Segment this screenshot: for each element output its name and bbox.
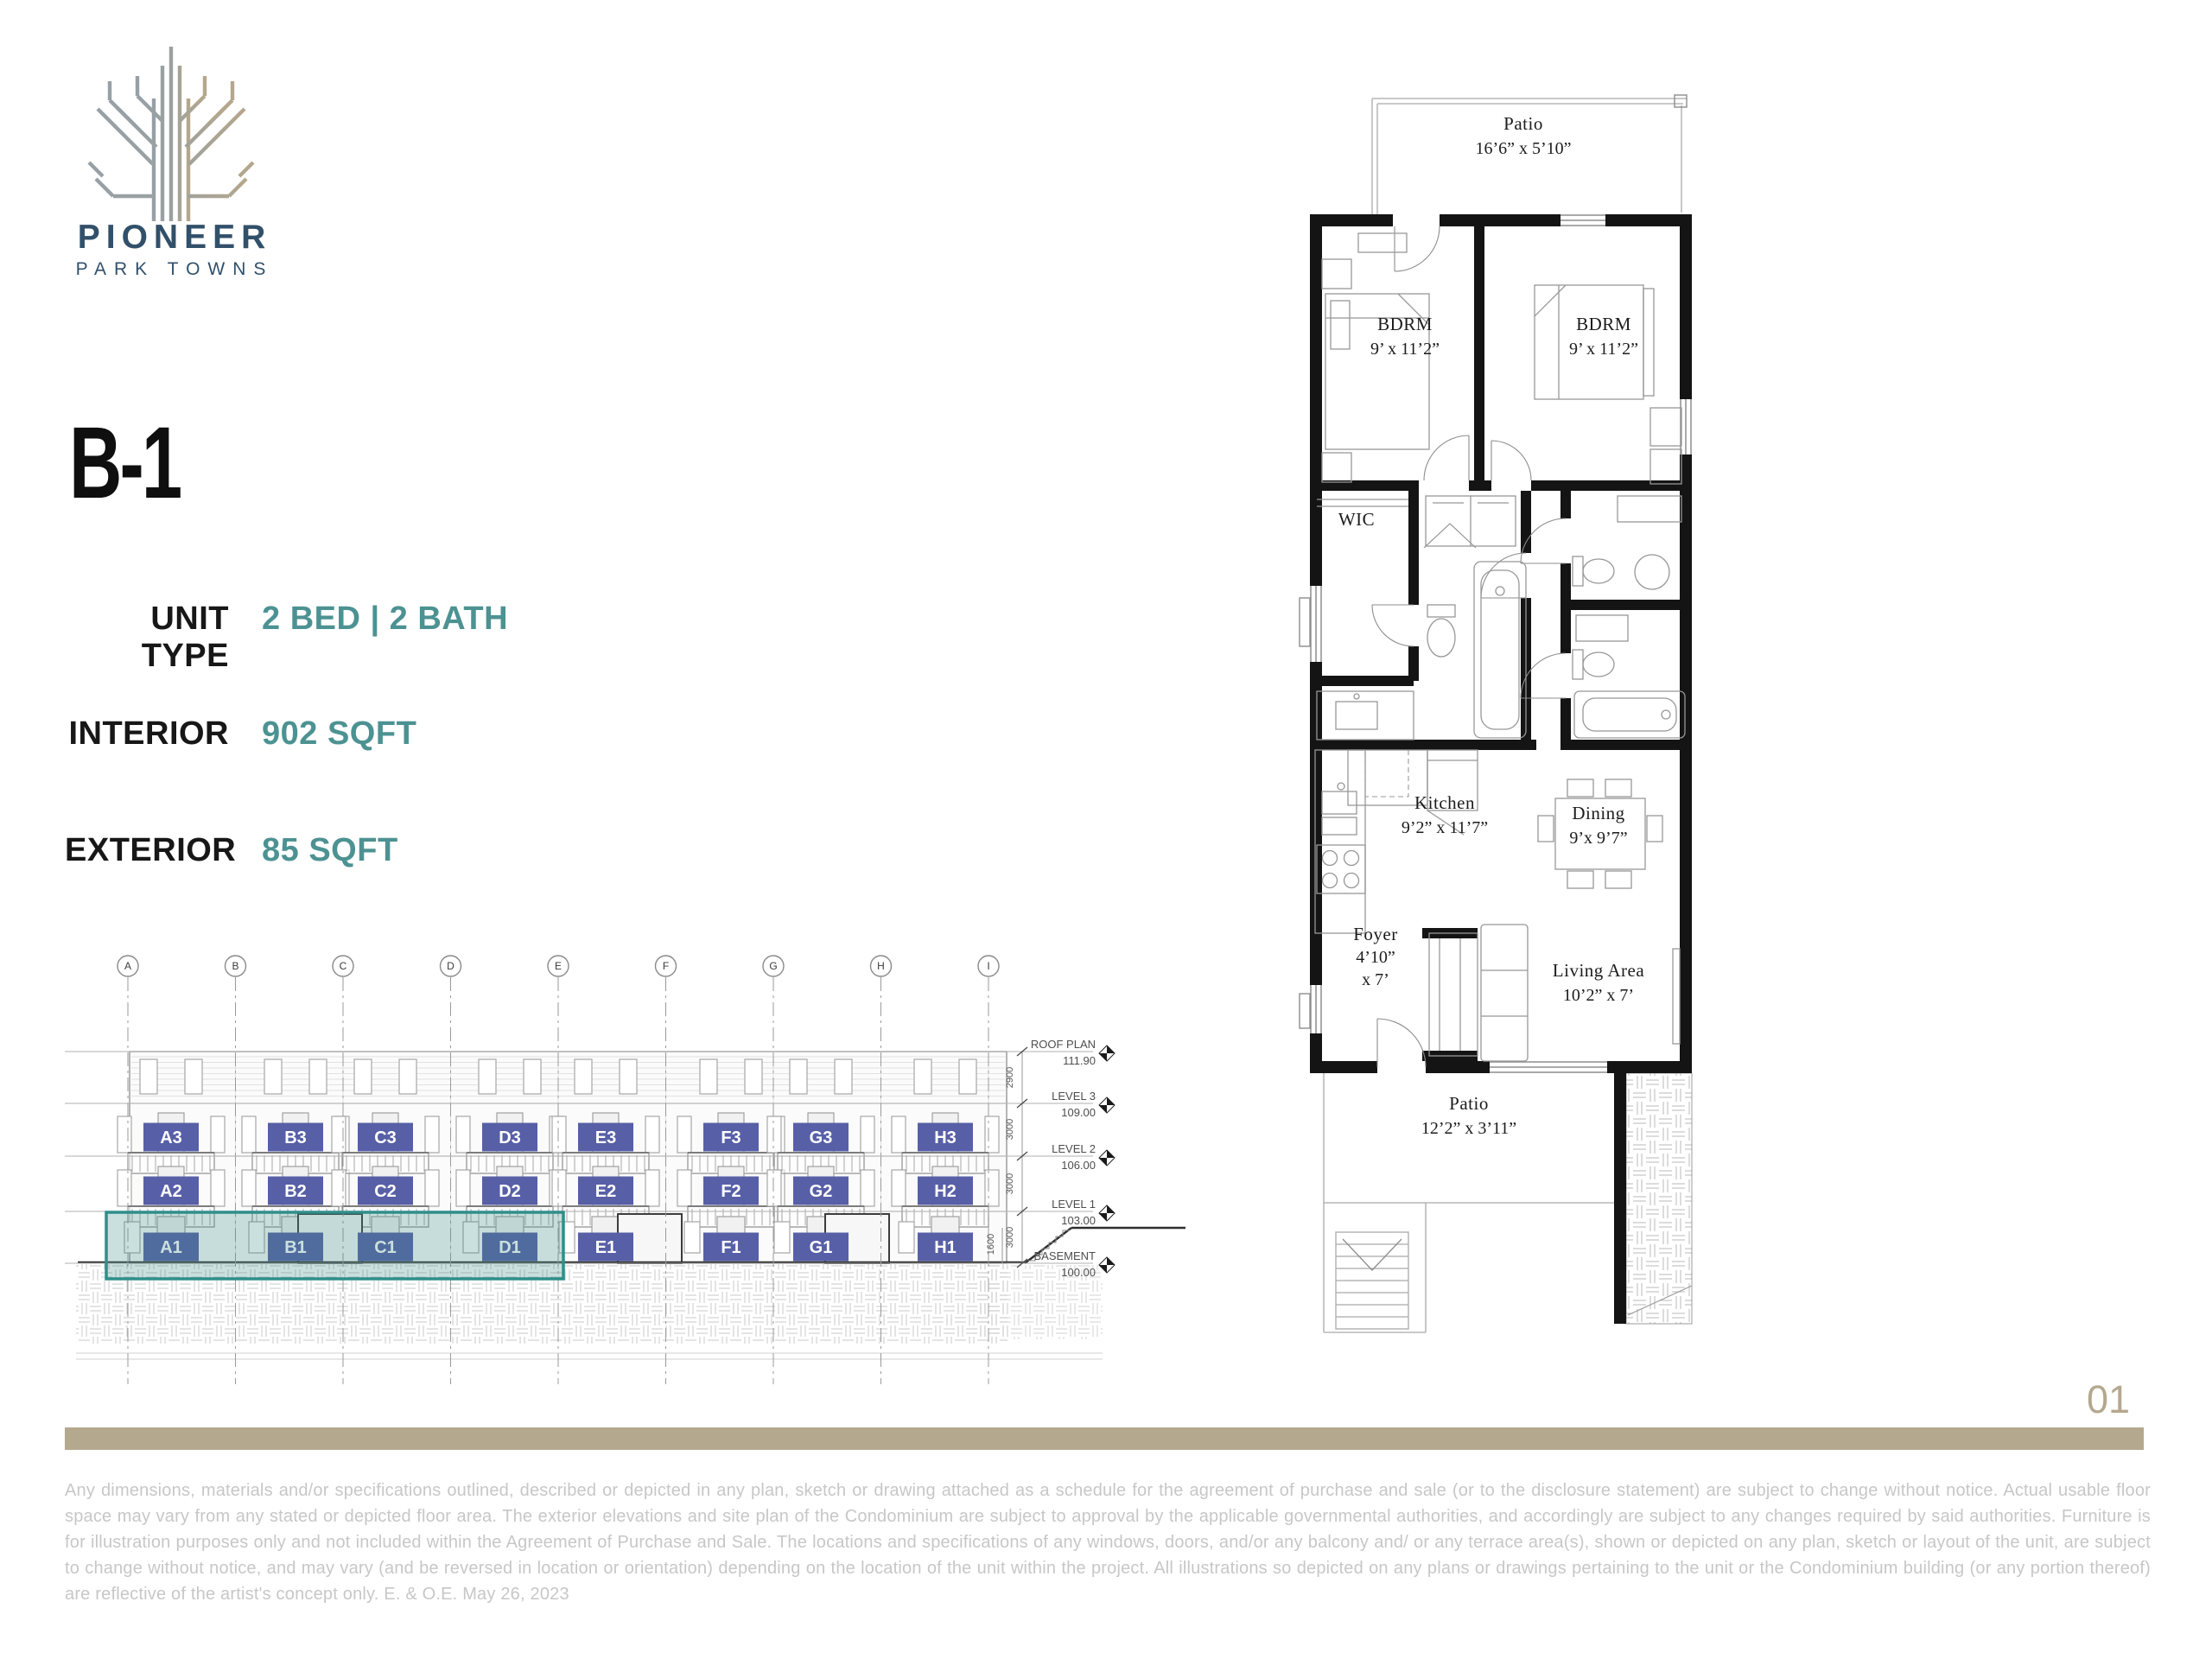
svg-text:9’ x 11’2”: 9’ x 11’2”: [1569, 340, 1638, 359]
spec-row-unit-type: UNIT TYPE 2 BED | 2 BATH: [65, 601, 842, 644]
svg-text:103.00: 103.00: [1061, 1214, 1096, 1227]
svg-text:D: D: [447, 960, 454, 972]
room-labels: Patio 16’6” x 5’10” BDRM 9’ x 11’2” BDRM…: [1338, 113, 1645, 1138]
svg-text:BASEMENT: BASEMENT: [1033, 1249, 1096, 1262]
spec-row-exterior: EXTERIOR 85 SQFT: [65, 832, 842, 875]
spec-value: 2 BED | 2 BATH: [262, 601, 508, 638]
highlighted-units-A1-D1-box: [106, 1212, 563, 1279]
disclaimer-text: Any dimensions, materials and/or specifi…: [65, 1478, 2151, 1607]
svg-text:F3: F3: [721, 1128, 741, 1147]
page-number: 01: [2072, 1377, 2145, 1422]
svg-text:ROOF PLAN: ROOF PLAN: [1031, 1038, 1096, 1051]
spec-label: EXTERIOR: [65, 832, 229, 869]
svg-text:BDRM: BDRM: [1377, 314, 1433, 334]
spec-label: INTERIOR: [65, 715, 229, 753]
svg-text:16’6” x 5’10”: 16’6” x 5’10”: [1475, 139, 1571, 158]
svg-text:C: C: [340, 960, 347, 972]
svg-text:A: A: [124, 960, 131, 972]
svg-text:H3: H3: [934, 1128, 957, 1147]
svg-text:LEVEL 3: LEVEL 3: [1052, 1090, 1096, 1103]
svg-text:109.00: 109.00: [1061, 1106, 1096, 1119]
svg-text:Patio: Patio: [1503, 113, 1543, 134]
svg-text:C3: C3: [374, 1128, 397, 1147]
svg-text:G1: G1: [810, 1238, 833, 1257]
svg-text:A3: A3: [160, 1128, 182, 1147]
svg-text:E1: E1: [595, 1238, 616, 1257]
pioneer-park-towns-logo-tree-icon: [63, 17, 279, 223]
svg-text:LEVEL 1: LEVEL 1: [1052, 1198, 1096, 1211]
svg-text:9’ x 11’2”: 9’ x 11’2”: [1370, 340, 1440, 359]
footer-accent-bar: [65, 1427, 2144, 1450]
svg-text:LEVEL 2: LEVEL 2: [1052, 1142, 1096, 1155]
svg-text:BDRM: BDRM: [1576, 314, 1631, 334]
svg-text:Foyer: Foyer: [1353, 924, 1398, 944]
svg-text:111.90: 111.90: [1063, 1054, 1096, 1067]
svg-text:H: H: [877, 960, 885, 972]
svg-text:C2: C2: [374, 1182, 397, 1201]
svg-text:3000: 3000: [1005, 1173, 1015, 1194]
svg-text:3000: 3000: [1005, 1227, 1015, 1248]
unit-code-title: B-1: [69, 404, 180, 522]
svg-text:B: B: [232, 960, 238, 972]
svg-text:Kitchen: Kitchen: [1414, 792, 1475, 813]
svg-text:E2: E2: [595, 1182, 616, 1201]
svg-text:WIC: WIC: [1338, 509, 1375, 530]
svg-text:H2: H2: [934, 1182, 957, 1201]
svg-text:I: I: [987, 960, 989, 972]
svg-text:1600: 1600: [986, 1234, 996, 1255]
svg-text:D3: D3: [499, 1128, 521, 1147]
svg-text:B2: B2: [284, 1182, 307, 1201]
brand-subtitle: PARK TOWNS: [62, 259, 287, 280]
spec-value: 902 SQFT: [262, 715, 416, 753]
svg-text:F1: F1: [721, 1238, 741, 1257]
brand-name: PIONEER: [62, 219, 287, 257]
floor-plan-drawing: Patio 16’6” x 5’10” BDRM 9’ x 11’2” BDRM…: [1244, 69, 1728, 1348]
svg-text:H1: H1: [934, 1238, 957, 1257]
svg-text:x 7’: x 7’: [1362, 970, 1389, 989]
svg-text:E3: E3: [595, 1128, 616, 1147]
spec-value: 85 SQFT: [262, 832, 398, 869]
svg-text:D2: D2: [499, 1182, 521, 1201]
svg-text:F: F: [663, 960, 669, 972]
svg-text:E: E: [555, 960, 562, 972]
svg-text:G: G: [769, 960, 777, 972]
svg-text:9’2” x 11’7”: 9’2” x 11’7”: [1402, 818, 1488, 837]
spec-label: UNIT TYPE: [65, 601, 229, 675]
svg-text:4’10”: 4’10”: [1356, 948, 1395, 967]
svg-text:G2: G2: [810, 1182, 833, 1201]
svg-text:Dining: Dining: [1572, 803, 1624, 823]
svg-text:106.00: 106.00: [1061, 1159, 1096, 1172]
svg-text:10’2” x 7’: 10’2” x 7’: [1563, 986, 1634, 1005]
svg-text:3000: 3000: [1005, 1119, 1015, 1140]
paved-patio-area: [1626, 1073, 1692, 1324]
svg-text:Living Area: Living Area: [1553, 960, 1645, 981]
svg-text:12’2” x 3’11”: 12’2” x 3’11”: [1421, 1119, 1516, 1138]
svg-text:Patio: Patio: [1449, 1093, 1489, 1114]
svg-text:A2: A2: [160, 1182, 182, 1201]
svg-text:G3: G3: [810, 1128, 833, 1147]
building-elevation-drawing: ABCDEFGHI ROOF PLAN111.90LEVEL 3109.00LE…: [52, 933, 1210, 1417]
svg-text:B3: B3: [284, 1128, 307, 1147]
svg-text:2900: 2900: [1005, 1067, 1015, 1088]
svg-text:F2: F2: [721, 1182, 741, 1201]
svg-text:100.00: 100.00: [1061, 1266, 1096, 1279]
spec-row-interior: INTERIOR 902 SQFT: [65, 715, 842, 759]
svg-text:9’x 9’7”: 9’x 9’7”: [1569, 829, 1627, 848]
